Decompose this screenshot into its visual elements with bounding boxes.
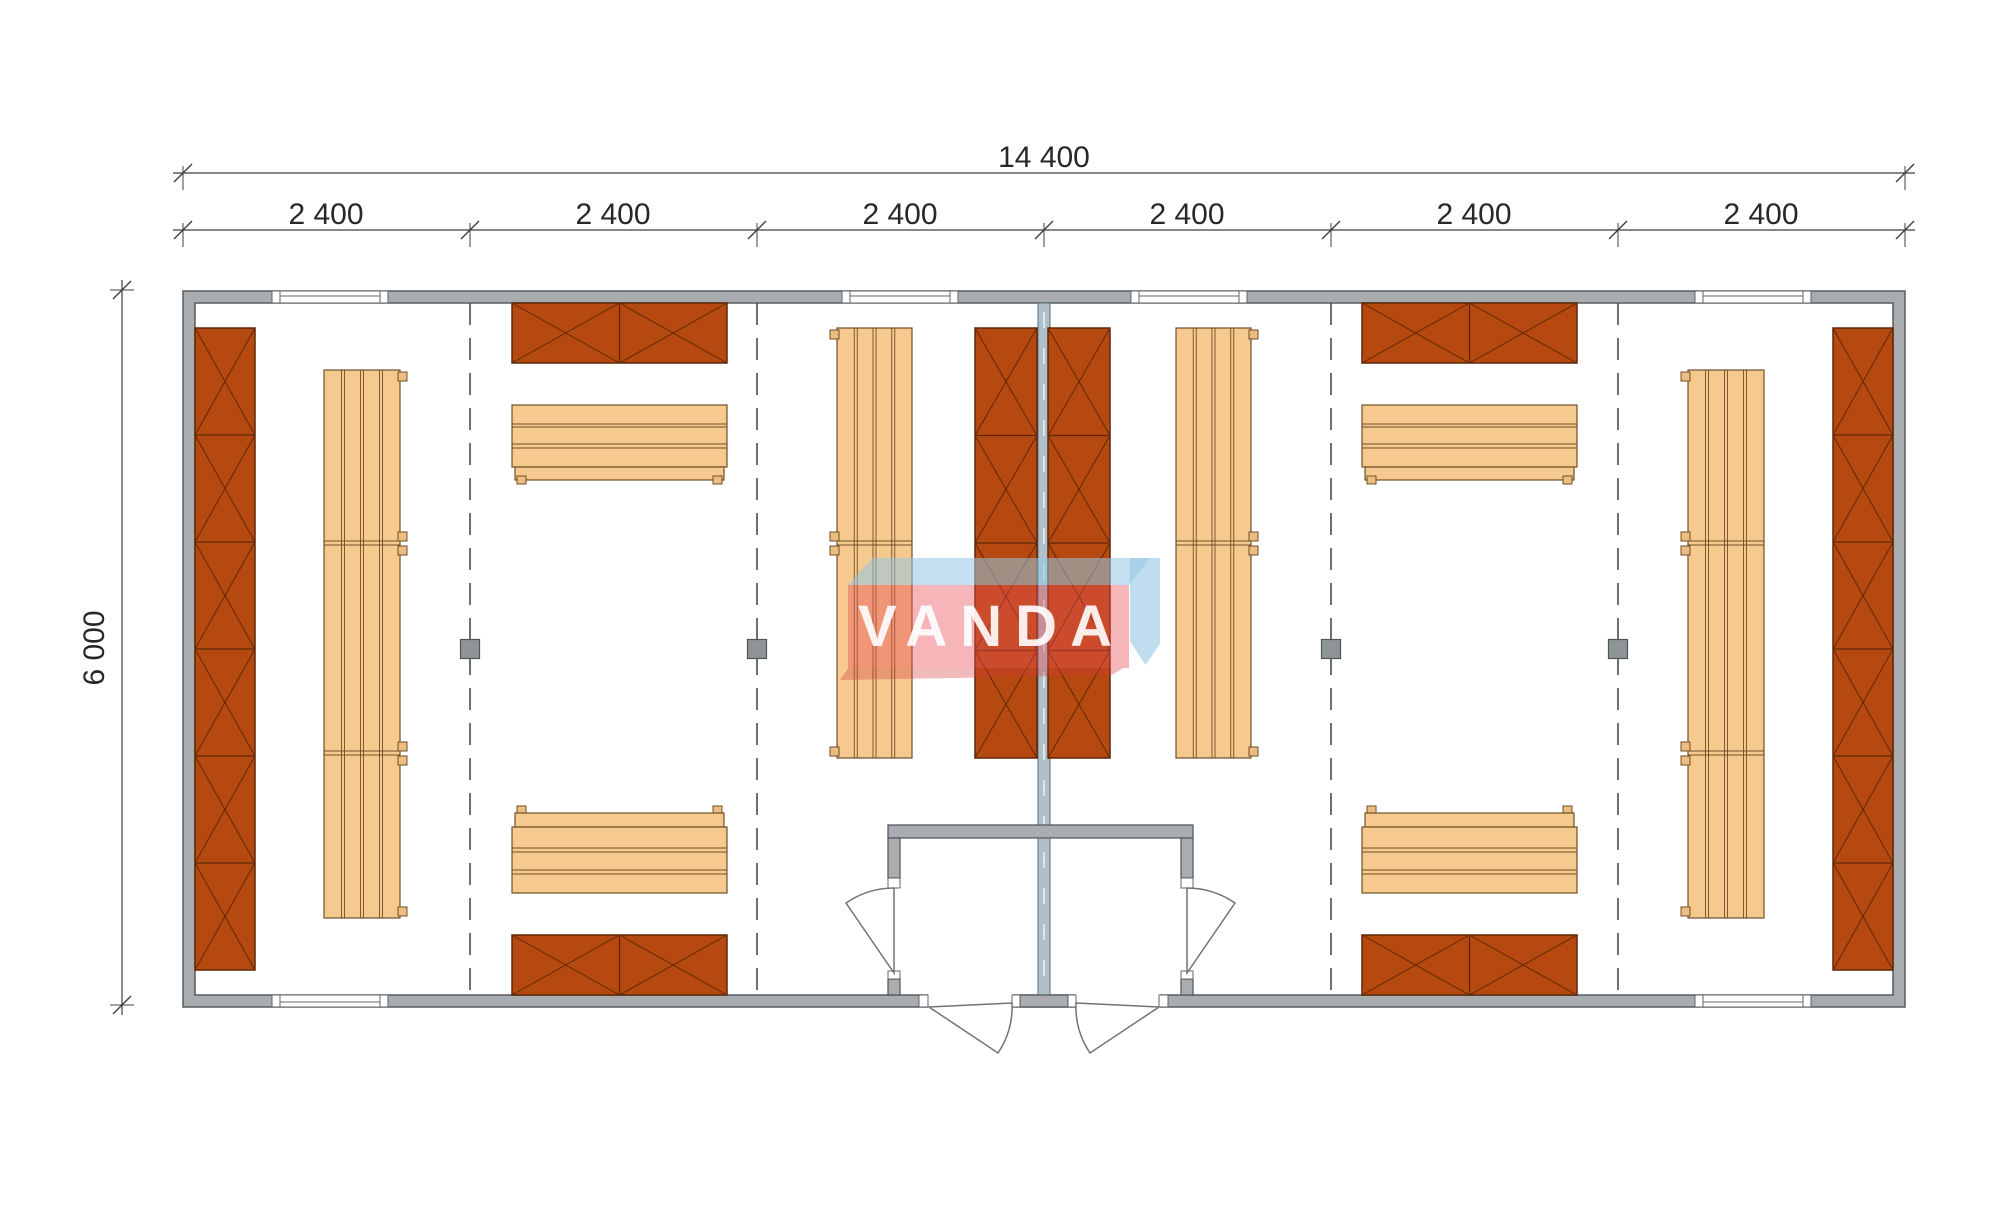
bench-leg	[830, 546, 839, 555]
bench	[1681, 370, 1764, 918]
bench-leg	[1249, 546, 1258, 555]
window	[272, 995, 388, 1007]
window	[1131, 291, 1247, 303]
table	[1362, 806, 1577, 893]
jamb-cap	[919, 995, 928, 1007]
table-leg	[517, 476, 526, 484]
storage-cabinet	[975, 328, 1037, 758]
bench-leg	[830, 747, 839, 756]
structural-post	[461, 640, 480, 659]
bench-leg	[830, 330, 839, 339]
segment-label: 2 400	[1436, 198, 1511, 231]
vestibule-right-stub	[1181, 979, 1193, 995]
structural-post	[748, 640, 767, 659]
segment-label: 2 400	[575, 198, 650, 231]
window	[842, 291, 958, 303]
jamb-cap	[1068, 995, 1076, 1007]
window	[1695, 291, 1811, 303]
exterior-door-right	[1076, 1003, 1159, 1053]
table-leg	[1563, 476, 1572, 484]
overall-width-label: 14 400	[998, 141, 1090, 174]
exterior-door-left	[929, 1003, 1012, 1053]
bench-leg	[830, 532, 839, 541]
table-leg	[713, 476, 722, 484]
storage-cabinet	[512, 303, 727, 363]
partition-wall-foot	[1020, 995, 1068, 1007]
segment-label: 2 400	[288, 198, 363, 231]
bench-leg	[398, 756, 407, 765]
bench-leg	[1249, 330, 1258, 339]
bench-leg	[1249, 532, 1258, 541]
storage-cabinet	[195, 328, 255, 970]
bench-leg	[398, 372, 407, 381]
interior-door-right	[1187, 888, 1235, 973]
window	[272, 291, 388, 303]
bench	[324, 370, 407, 918]
jamb-cap	[888, 878, 900, 888]
vestibule-right-return	[1181, 838, 1193, 878]
jamb-cap	[1012, 995, 1020, 1007]
table	[1362, 405, 1577, 484]
jamb-cap	[1181, 878, 1193, 888]
bench-leg	[398, 907, 407, 916]
vestibule-left-return	[888, 838, 900, 878]
bench-leg	[398, 742, 407, 751]
table	[512, 806, 727, 893]
jamb-cap	[1159, 995, 1168, 1007]
storage-cabinet	[1048, 328, 1110, 758]
bench-leg	[1681, 372, 1690, 381]
bench-leg	[1681, 742, 1690, 751]
window	[1695, 995, 1811, 1007]
interior-door-left	[846, 888, 894, 973]
storage-cabinet	[1362, 303, 1577, 363]
storage-cabinet	[1833, 328, 1893, 970]
bench-leg	[1681, 532, 1690, 541]
bench-leg	[1681, 546, 1690, 555]
storage-cabinet	[1362, 935, 1577, 995]
bench-leg	[398, 532, 407, 541]
bench-leg	[398, 546, 407, 555]
bench-leg	[1249, 747, 1258, 756]
vestibule-left-stub	[888, 979, 900, 995]
bench	[830, 328, 912, 758]
table	[512, 405, 727, 484]
segment-label: 2 400	[1149, 198, 1224, 231]
table-leg	[1367, 476, 1376, 484]
structural-post	[1322, 640, 1341, 659]
floor-plan-canvas: 14 400 2 400 2 400 2 400 2 400 2 400 2 4…	[0, 0, 2000, 1226]
bench	[1176, 328, 1258, 758]
height-label: 6 000	[78, 610, 111, 685]
bench-leg	[1681, 907, 1690, 916]
vestibule-top-wall	[888, 825, 1193, 838]
structural-post	[1609, 640, 1628, 659]
segment-label: 2 400	[1723, 198, 1798, 231]
segment-label: 2 400	[862, 198, 937, 231]
storage-cabinet	[512, 935, 727, 995]
bench-leg	[1681, 756, 1690, 765]
